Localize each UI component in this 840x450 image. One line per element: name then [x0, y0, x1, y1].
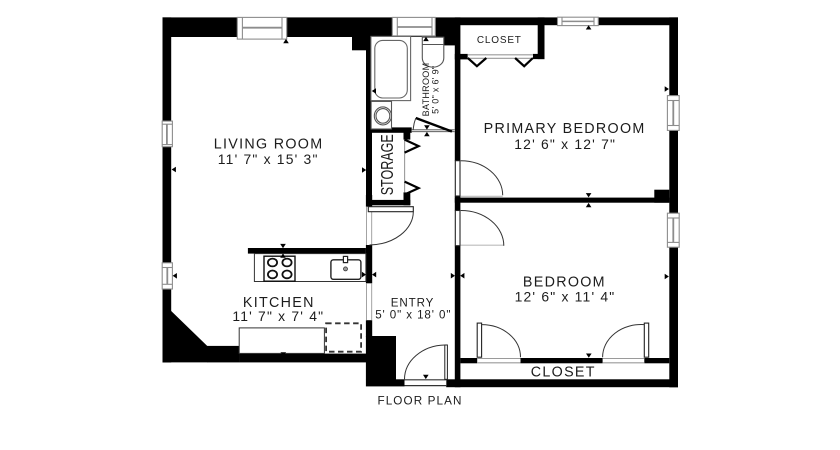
- svg-text:12' 6" x 11' 4": 12' 6" x 11' 4": [515, 288, 616, 304]
- svg-text:BATHROOM: BATHROOM: [421, 63, 431, 117]
- svg-text:STORAGE: STORAGE: [377, 134, 397, 195]
- svg-text:FLOOR PLAN: FLOOR PLAN: [377, 395, 462, 408]
- svg-text:CLOSET: CLOSET: [477, 35, 522, 46]
- svg-text:5' 0" x 6' 9": 5' 0" x 6' 9": [431, 66, 441, 114]
- svg-text:12' 6" x 12' 7": 12' 6" x 12' 7": [514, 136, 616, 152]
- svg-text:PRIMARY BEDROOM: PRIMARY BEDROOM: [484, 121, 646, 137]
- svg-text:CLOSET: CLOSET: [531, 364, 596, 380]
- svg-text:11' 7" x 7' 4": 11' 7" x 7' 4": [232, 308, 324, 324]
- svg-text:5' 0" x 18' 0": 5' 0" x 18' 0": [375, 308, 451, 321]
- svg-text:11' 7" x 15' 3": 11' 7" x 15' 3": [218, 151, 319, 167]
- svg-text:LIVING ROOM: LIVING ROOM: [214, 137, 324, 153]
